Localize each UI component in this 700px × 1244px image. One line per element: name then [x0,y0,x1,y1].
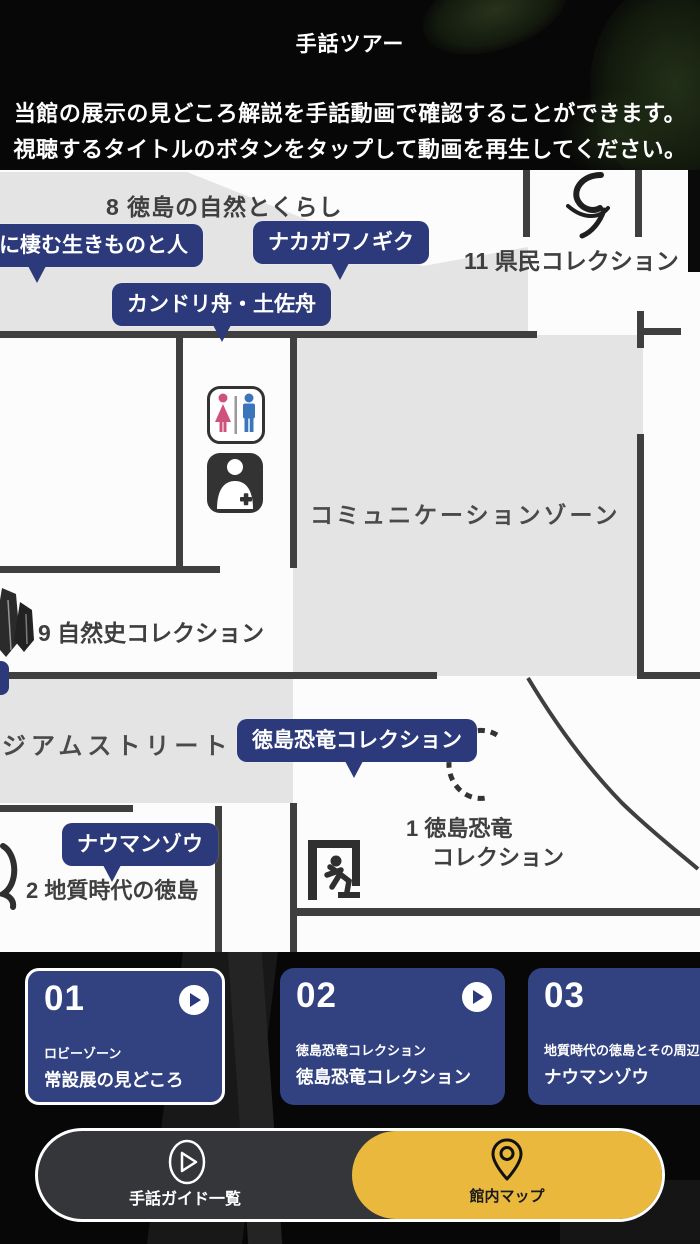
pill-button-naumann-elephant[interactable]: ナウマンゾウ [62,823,218,866]
sign-guide-list-button[interactable]: 手話ガイド一覧 [38,1131,352,1219]
video-card-03[interactable]: 03 地質時代の徳島とその周辺 ナウマンゾウ [528,968,700,1105]
zone-label-1-line2: コレクション [432,840,564,872]
description-line-2: 視聴するタイトルのボタンをタップして動画を再生してください。 [0,132,700,164]
video-card-02[interactable]: 02 徳島恐竜コレクション 徳島恐竜コレクション [280,968,505,1105]
video-card-01[interactable]: 01 ロビーゾーン 常設展の見どころ [25,968,225,1105]
museum-map-label: 館内マップ [407,1185,607,1206]
pill-button-kandori-boat[interactable]: カンドリ舟・土佐舟 [112,283,331,326]
description-line-1: 当館の展示の見どころ解説を手話動画で確認することができます。 [0,96,700,128]
emergency-exit-icon [308,840,360,900]
pill-tail [28,266,46,283]
play-icon [473,990,484,1004]
pill-label: ナカガワノギク [268,231,414,254]
page-title: 手話ツアー [0,28,700,58]
sign-guide-list-label: 手話ガイド一覧 [85,1185,285,1209]
pill-label: カンドリ舟・土佐舟 [127,293,316,316]
map-corner-black-notch [688,170,700,272]
card-title: ナウマンゾウ [544,1064,649,1089]
location-pin-icon [489,1137,525,1183]
play-button[interactable] [462,982,492,1012]
zone-label-9: 9 自然史コレクション [38,614,264,648]
pill-button-nakagawanogiku[interactable]: ナカガワノギク [253,221,429,264]
pill-button-river-creatures[interactable]: に棲む生きものと人 [0,224,203,267]
zone-label-museum-street: ジアムストリート [2,726,232,761]
floor-map: 8 徳島の自然とくらし 11 県民コレクション コミュニケーションゾーン 9 自… [0,170,700,952]
pill-tail [331,263,349,280]
museum-map-button[interactable]: 館内マップ [352,1131,662,1219]
card-title: 徳島恐竜コレクション [296,1064,471,1089]
zone-label-8: 8 徳島の自然とくらし [106,188,343,222]
pill-button-dinosaur-collection[interactable]: 徳島恐竜コレクション [237,719,477,762]
divider [235,396,238,434]
zone-label-1-line1: 1 徳島恐竜 [406,811,512,843]
pill-label: ナウマンゾウ [77,833,203,856]
mammoth-illustration-partial [3,846,14,907]
male-figure [243,394,255,433]
card-subtitle: ロビーゾーン [44,1043,121,1062]
pill-tail [213,325,231,342]
play-button[interactable] [179,985,209,1015]
mineral-crystal-icon [0,588,34,657]
nursing-room-icon [207,453,263,513]
pill-tail [345,761,363,778]
play-outline-icon [167,1139,207,1185]
card-number: 03 [544,976,585,1016]
card-number: 02 [296,976,337,1016]
restroom-icon [207,386,265,444]
card-subtitle: 徳島恐竜コレクション [296,1040,426,1059]
play-icon [190,993,201,1007]
pill-button-clipped[interactable] [0,661,9,695]
bottom-navigation: 手話ガイド一覧 館内マップ [35,1128,665,1222]
card-subtitle: 地質時代の徳島とその周辺 [544,1040,700,1059]
ammonite-curl-icon [568,175,608,236]
card-title: 常設展の見どころ [44,1067,183,1092]
pill-label: に棲む生きものと人 [0,234,188,257]
card-number: 01 [44,979,85,1019]
sign-language-tour-screen: 手話ツアー 当館の展示の見どころ解説を手話動画で確認することができます。 視聴す… [0,0,700,1244]
zone-label-11: 11 県民コレクション [464,242,679,276]
pill-tail [103,865,121,882]
female-figure [215,394,231,433]
zone-label-communication: コミュニケーションゾーン [310,496,620,530]
pill-label: 徳島恐竜コレクション [252,729,462,752]
